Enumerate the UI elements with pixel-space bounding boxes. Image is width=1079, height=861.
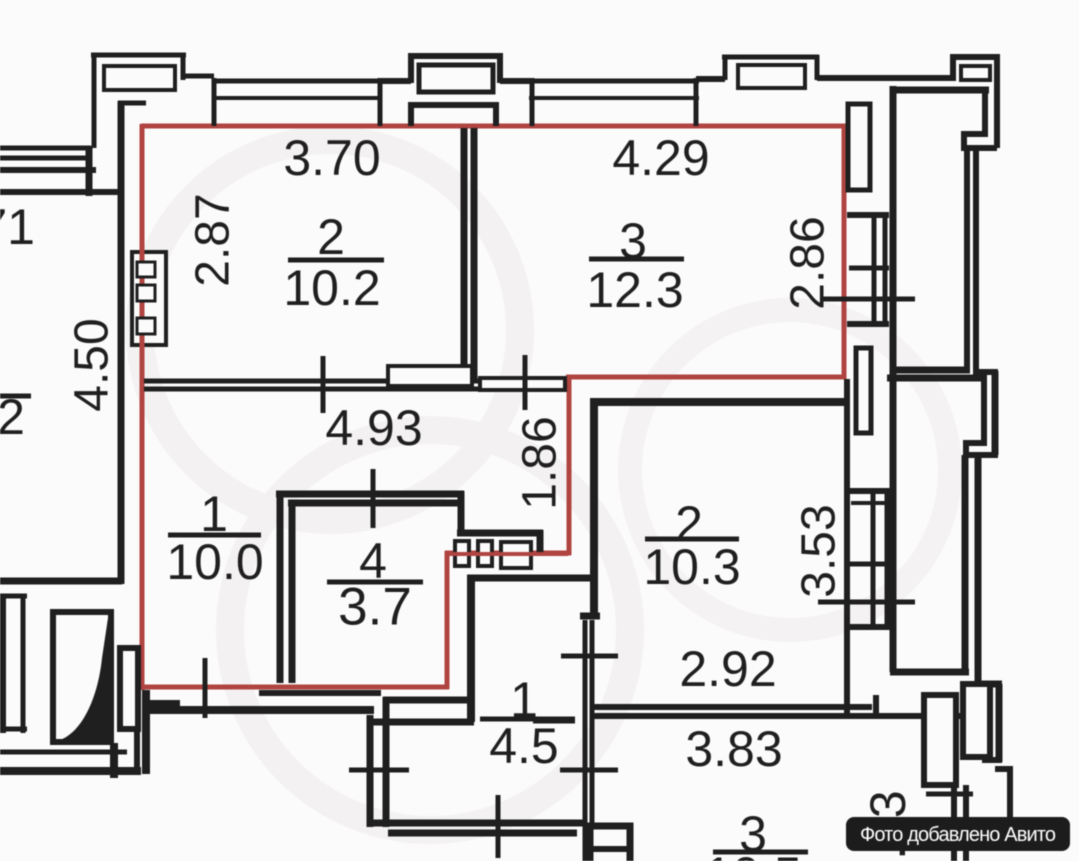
- svg-text:3.70: 3.70: [283, 130, 380, 186]
- svg-text:71: 71: [0, 199, 35, 255]
- svg-text:1.86: 1.86: [514, 416, 567, 509]
- svg-text:10.0: 10.0: [166, 534, 263, 590]
- svg-text:2.86: 2.86: [782, 216, 835, 309]
- svg-text:3.7: 3.7: [338, 578, 412, 637]
- svg-text:2.92: 2.92: [679, 641, 776, 697]
- svg-text:12.3: 12.3: [586, 262, 683, 318]
- svg-text:4.50: 4.50: [66, 318, 119, 411]
- svg-text:2.87: 2.87: [187, 193, 240, 286]
- svg-text:10.5: 10.5: [704, 847, 801, 861]
- svg-text:10.3: 10.3: [643, 539, 740, 595]
- svg-text:Фото добавлено Авито: Фото добавлено Авито: [860, 824, 1056, 846]
- svg-text:4.29: 4.29: [612, 130, 709, 186]
- svg-text:3.53: 3.53: [793, 504, 846, 597]
- svg-text:2: 2: [317, 209, 345, 265]
- svg-text:10.2: 10.2: [283, 260, 380, 316]
- svg-text:4.93: 4.93: [325, 400, 422, 456]
- svg-text:3.83: 3.83: [685, 721, 782, 777]
- svg-text:4.5: 4.5: [489, 718, 559, 774]
